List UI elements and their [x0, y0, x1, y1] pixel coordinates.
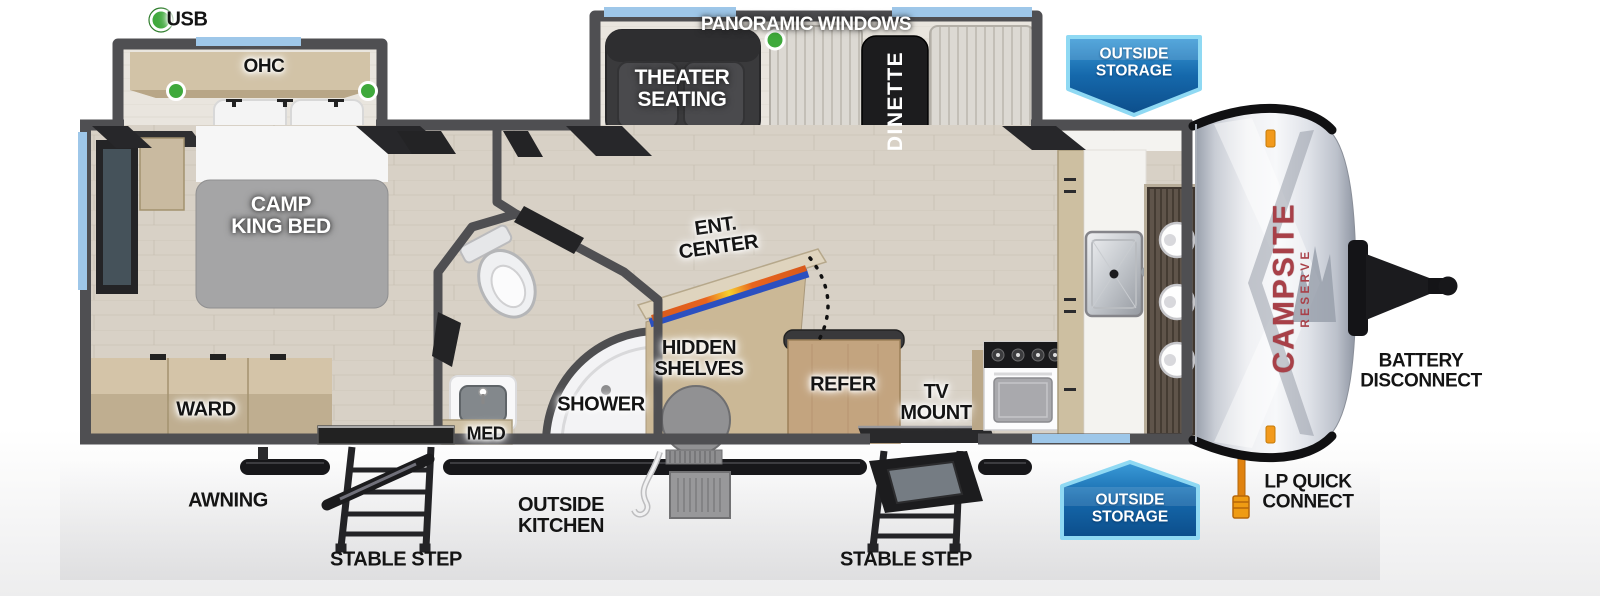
outside-kitchen-hatch	[318, 426, 454, 444]
label-panoramic-windows: PANORAMIC WINDOWS	[701, 15, 911, 35]
rear-window	[78, 132, 87, 290]
brand-campsite: CAMPSITE	[1268, 202, 1299, 373]
label-med: MED	[467, 425, 506, 444]
floorplan-canvas: USB PANORAMIC WINDOWS OHC OUTSIDE STORAG…	[0, 0, 1600, 596]
label-hidden-shelves: HIDDEN SHELVES	[654, 338, 743, 380]
label-theater-seating: THEATER SEATING	[635, 67, 730, 111]
marker-light	[1266, 426, 1275, 443]
label-stable-step-right: STABLE STEP	[840, 550, 972, 571]
label-outside-storage-top: OUTSIDE STORAGE	[1096, 46, 1172, 81]
panoramic-window-right	[892, 7, 1032, 17]
label-dinette: DINETTE	[885, 51, 907, 151]
hitch-tongue	[1348, 240, 1458, 336]
label-tv-mount: TV MOUNT	[900, 382, 971, 424]
label-ward: WARD	[176, 400, 236, 421]
label-outside-kitchen: OUTSIDE KITCHEN	[518, 495, 604, 537]
label-usb: USB	[166, 10, 207, 31]
pantry	[1058, 150, 1084, 438]
label-battery-disconnect: BATTERY DISCONNECT	[1360, 351, 1482, 391]
wardrobe	[88, 358, 332, 394]
usb-port-dot	[168, 83, 185, 100]
label-shower: SHOWER	[557, 395, 645, 416]
label-camp-king-bed: CAMP KING BED	[231, 194, 330, 238]
label-stable-step-left: STABLE STEP	[330, 550, 462, 571]
bedroom-window	[196, 37, 301, 46]
label-lp-quick-connect: LP QUICK CONNECT	[1262, 472, 1353, 512]
label-refer: REFER	[810, 375, 876, 396]
usb-port-dot	[360, 83, 377, 100]
label-ohc: OHC	[243, 57, 284, 77]
door-side-window	[1032, 434, 1130, 443]
marker-light	[1266, 130, 1275, 147]
label-awning: AWNING	[188, 491, 268, 512]
bed-sheet	[196, 126, 388, 182]
brand-reserve: RESERVE	[1301, 248, 1313, 327]
nightstand	[140, 138, 184, 210]
label-outside-storage-bottom: OUTSIDE STORAGE	[1092, 492, 1168, 527]
